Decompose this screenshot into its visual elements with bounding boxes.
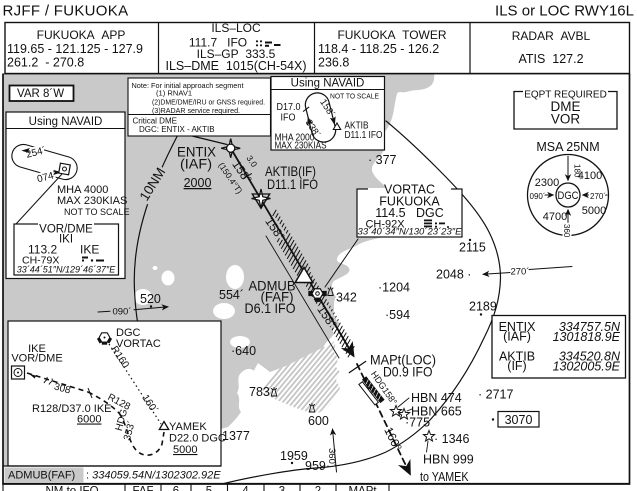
svg-text:D6.1 IFO: D6.1 IFO [245, 300, 296, 316]
svg-text:3: 3 [279, 486, 285, 491]
svg-text:(IF): (IF) [507, 359, 526, 373]
svg-text:·594: ·594 [385, 308, 410, 322]
svg-text:119.65 - 121.125 - 127.9: 119.65 - 121.125 - 127.9 [7, 42, 143, 56]
svg-text:MSA 25NM: MSA 25NM [536, 140, 599, 154]
svg-text:DGC: DGC [558, 190, 579, 202]
svg-text:342: 342 [336, 291, 357, 305]
svg-text:MAX 230KIAS: MAX 230KIAS [57, 195, 127, 207]
svg-text:·775: ·775 [405, 416, 430, 430]
svg-text:VOR: VOR [551, 112, 581, 127]
svg-text:5: 5 [206, 486, 212, 491]
svg-text:090´: 090´ [112, 307, 131, 318]
svg-text:· 1346: · 1346 [434, 432, 469, 446]
svg-text:VAR 8´W: VAR 8´W [17, 88, 64, 100]
svg-text:1302005.9E: 1302005.9E [553, 360, 621, 374]
svg-text:(1) RNAV1: (1) RNAV1 [156, 89, 192, 98]
svg-text:236.8: 236.8 [318, 56, 349, 70]
svg-text:1301818.9E: 1301818.9E [553, 330, 621, 344]
svg-text:NM to IFO: NM to IFO [45, 486, 98, 491]
svg-text:2115: 2115 [459, 241, 486, 255]
svg-text:4700: 4700 [543, 211, 567, 223]
svg-text:DGC: ENTIX - AKTIB: DGC: ENTIX - AKTIB [139, 125, 215, 134]
svg-text:YAMEK: YAMEK [169, 421, 207, 433]
svg-text:118.4 - 118.25 - 126.2: 118.4 - 118.25 - 126.2 [318, 42, 439, 56]
svg-text:270´: 270´ [590, 192, 606, 201]
svg-text:·640: ·640 [231, 344, 256, 358]
svg-text:to YAMEK: to YAMEK [420, 470, 469, 484]
svg-text:360: 360 [562, 224, 571, 238]
svg-text:6: 6 [173, 486, 179, 491]
svg-text:VOR/DME: VOR/DME [11, 353, 62, 365]
svg-text:33´40´34″N/130´23´23″E: 33´40´34″N/130´23´23″E [358, 227, 463, 238]
svg-text:D11.1 IFO: D11.1 IFO [267, 176, 318, 192]
svg-text:MAX 230KIAS: MAX 230KIAS [275, 140, 327, 152]
svg-text:: 334059.54N/1302302.92E: : 334059.54N/1302302.92E [86, 470, 221, 482]
svg-text:554´: 554´ [219, 288, 244, 302]
svg-text:3070: 3070 [505, 413, 533, 427]
svg-text:ADMUB(FAF): ADMUB(FAF) [8, 470, 75, 482]
svg-text:600: 600 [308, 414, 329, 428]
svg-text:D22.0 DGC: D22.0 DGC [169, 433, 226, 445]
svg-text:5000: 5000 [173, 444, 197, 456]
svg-text:IKI: IKI [59, 234, 73, 246]
svg-text:(3)RADAR service required.: (3)RADAR service required. [152, 106, 240, 115]
svg-text:ILS or LOC RWY16L: ILS or LOC RWY16L [495, 3, 634, 20]
svg-text:ILS–DME 1015(CH-54X): ILS–DME 1015(CH-54X) [165, 59, 306, 73]
svg-text:·1204: ·1204 [378, 281, 410, 295]
svg-text:2300: 2300 [535, 177, 559, 189]
svg-text:1959: 1959 [280, 449, 308, 463]
svg-text:FUKUOKA APP: FUKUOKA APP [37, 28, 126, 42]
svg-text:D0.9 IFO: D0.9 IFO [383, 364, 433, 380]
svg-text:· 377: · 377 [368, 153, 397, 167]
svg-text:ATIS 127.2: ATIS 127.2 [518, 52, 583, 66]
svg-text:ILS–LOC: ILS–LOC [211, 21, 261, 35]
svg-text:6000: 6000 [77, 414, 101, 426]
svg-text:090´: 090´ [530, 192, 546, 201]
svg-text:(IAF): (IAF) [180, 156, 212, 172]
svg-text:2189: 2189 [469, 300, 497, 314]
svg-text:Using NAVAID: Using NAVAID [29, 116, 103, 128]
svg-text:261.2 - 270.8: 261.2 - 270.8 [7, 56, 84, 70]
svg-text:FAF: FAF [132, 486, 153, 491]
svg-text:MAPt: MAPt [348, 486, 377, 491]
svg-text:HBN 474: HBN 474 [411, 391, 462, 405]
svg-text:IKE: IKE [80, 243, 99, 257]
svg-text:2048 ·: 2048 · [436, 268, 471, 282]
svg-text:(IAF): (IAF) [503, 330, 531, 344]
svg-text:NOT TO SCALE: NOT TO SCALE [64, 207, 130, 217]
svg-text:D11.1 IFO: D11.1 IFO [345, 129, 383, 141]
svg-text:2000: 2000 [184, 176, 212, 190]
svg-text:4100: 4100 [578, 170, 602, 182]
svg-text:VORTAC: VORTAC [116, 338, 161, 350]
svg-text:FUKUOKA TOWER: FUKUOKA TOWER [337, 28, 446, 42]
svg-text:520: 520 [140, 292, 161, 306]
svg-text:1377: 1377 [222, 429, 250, 443]
svg-text:RJFF / FUKUOKA: RJFF / FUKUOKA [3, 3, 129, 20]
svg-text:NOT TO SCALE: NOT TO SCALE [330, 92, 379, 101]
svg-text:RADAR AVBL: RADAR AVBL [512, 29, 591, 43]
svg-text:Using NAVAID: Using NAVAID [291, 78, 365, 90]
svg-text:270´: 270´ [510, 267, 529, 278]
svg-text:783: 783 [249, 385, 270, 399]
svg-text:· 2717: · 2717 [478, 388, 513, 402]
svg-text:4: 4 [242, 486, 249, 491]
svg-text:IFO: IFO [281, 112, 296, 124]
svg-text:959·: 959· [305, 459, 330, 473]
svg-text:5000: 5000 [582, 205, 606, 217]
svg-text:33´44´51″N/129´46´37″E: 33´44´51″N/129´46´37″E [17, 265, 116, 275]
svg-text:2: 2 [315, 486, 321, 491]
svg-text:HBN 999: HBN 999 [423, 453, 474, 467]
